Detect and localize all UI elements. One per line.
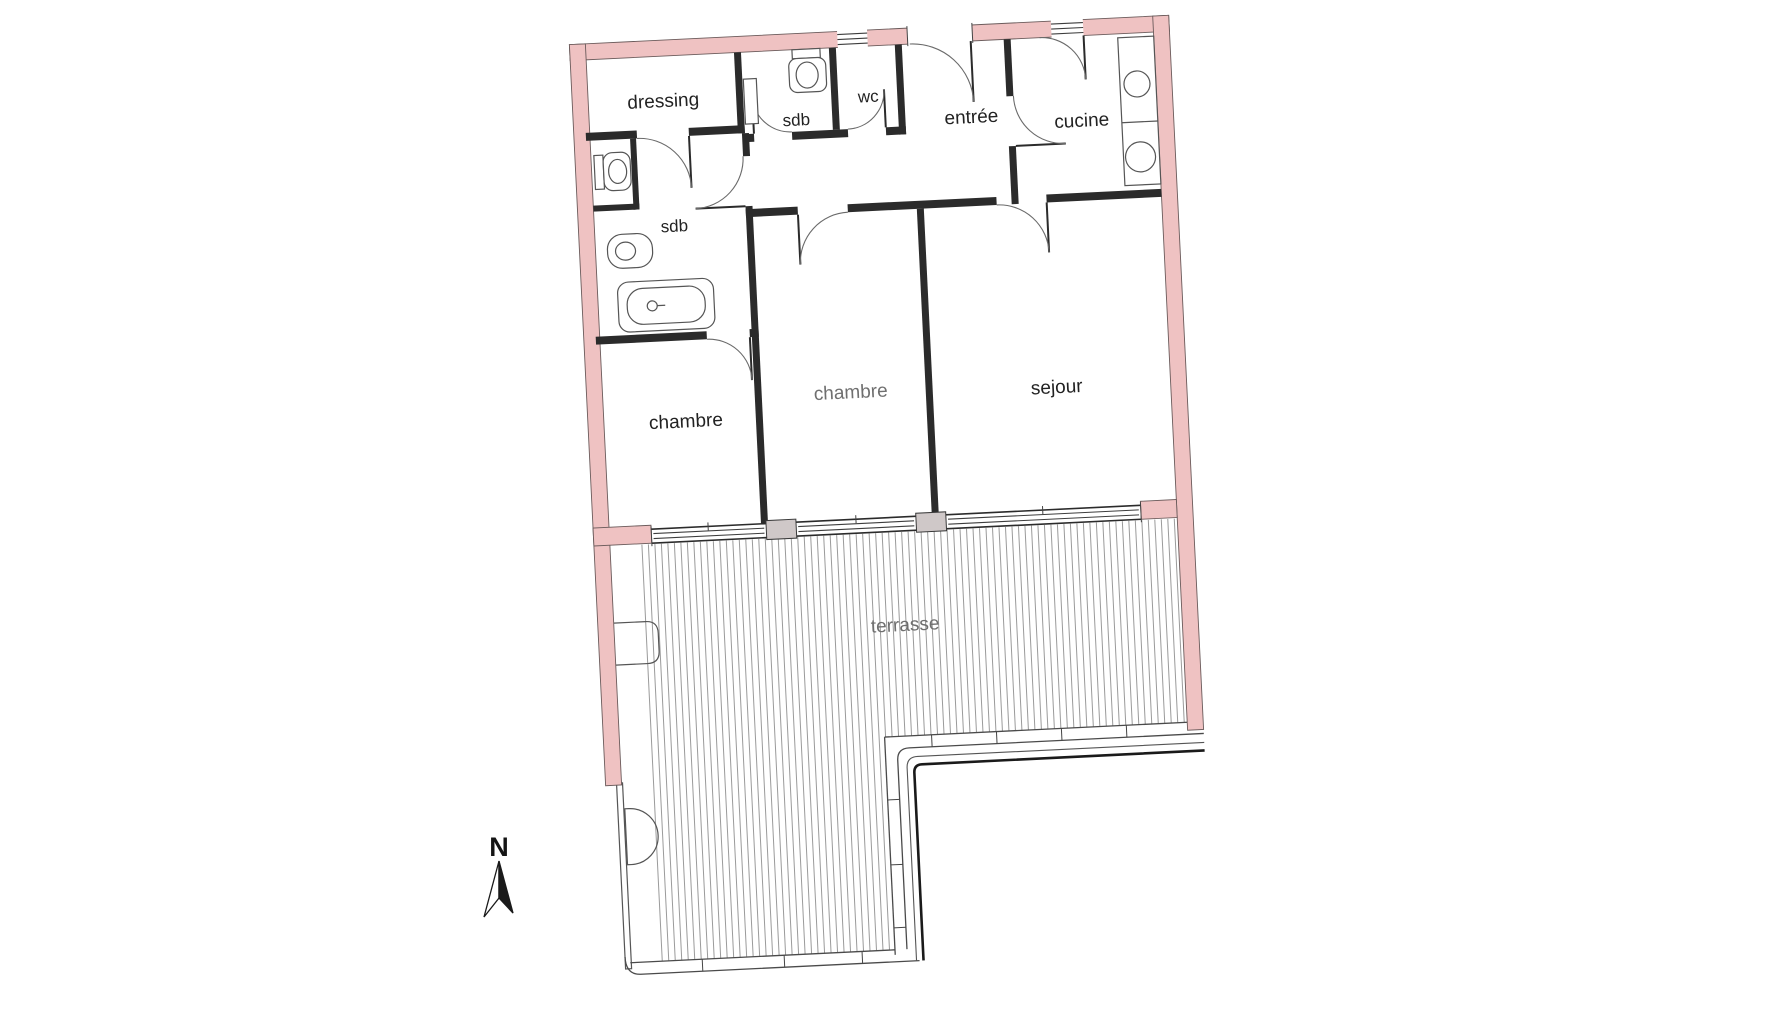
room-label-wc: wc — [856, 87, 879, 107]
window-icon — [1051, 19, 1084, 39]
washbasin-icon — [607, 233, 654, 269]
background — [0, 0, 1792, 1024]
room-label-entree: entrée — [944, 106, 999, 130]
floor-plan-canvas: dressing sdb wc entrée cucine sdb chambr… — [0, 0, 1792, 1024]
room-label-dressing: dressing — [627, 89, 700, 113]
hob-icon — [1125, 141, 1156, 172]
wall-stub-right — [1140, 500, 1177, 520]
window-post — [766, 519, 797, 539]
sink-icon — [1123, 70, 1150, 97]
floor-plan: dressing sdb wc entrée cucine sdb chambr… — [0, 0, 1792, 1024]
entrance-opening — [907, 23, 973, 46]
bathroom-cabinet — [743, 79, 758, 125]
toilet-icon — [594, 152, 632, 192]
room-label-chambre-middle: chambre — [813, 381, 888, 406]
room-label-sejour: sejour — [1030, 376, 1083, 400]
wall-stub-left — [593, 525, 652, 546]
north-label: N — [489, 832, 509, 862]
bathtub-icon — [617, 278, 715, 333]
room-label-sdb-top: sdb — [782, 110, 810, 130]
room-label-chambre-left: chambre — [649, 410, 724, 435]
room-label-sdb-left: sdb — [660, 216, 688, 236]
window-icon — [837, 29, 868, 48]
window-post — [916, 512, 947, 532]
room-label-cucine: cucine — [1054, 109, 1110, 133]
room-label-terrasse: terrasse — [870, 613, 940, 637]
